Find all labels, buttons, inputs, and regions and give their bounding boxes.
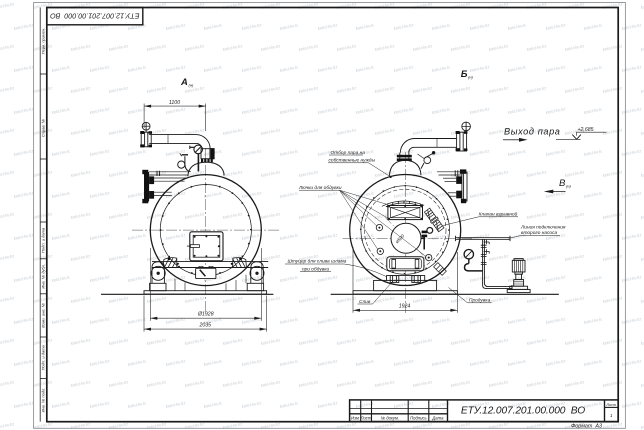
svg-text:Дата: Дата bbox=[431, 416, 444, 421]
svg-text:ЕТУ.12.007.201.00.000 ВО: ЕТУ.12.007.201.00.000 ВО bbox=[50, 12, 140, 21]
svg-text:Ø1928: Ø1928 bbox=[197, 312, 214, 318]
svg-text:(н): (н) bbox=[189, 83, 195, 88]
svg-text:Изм: Изм bbox=[351, 416, 359, 421]
svg-text:ЕТУ.12.007.201.00.000 ВО: ЕТУ.12.007.201.00.000 ВО bbox=[461, 406, 585, 417]
svg-text:1924: 1924 bbox=[399, 304, 411, 310]
svg-text:Линия подключения: Линия подключения bbox=[520, 224, 566, 230]
svg-text:Лист: Лист bbox=[360, 416, 372, 421]
svg-text:Инв. № дубл.: Инв. № дубл. bbox=[41, 264, 46, 289]
svg-text:1: 1 bbox=[610, 413, 612, 418]
svg-text:Инв. № подл.: Инв. № подл. bbox=[41, 388, 46, 413]
svg-text:Б: Б bbox=[461, 69, 468, 80]
svg-text:Выход пара: Выход пара bbox=[504, 127, 561, 137]
svg-text:В: В bbox=[559, 178, 566, 189]
svg-text:Лючки для обдувки: Лючки для обдувки bbox=[298, 185, 342, 191]
svg-text:2035: 2035 bbox=[199, 323, 212, 329]
svg-text:№ докум.: № докум. bbox=[381, 416, 399, 421]
svg-text:(н): (н) bbox=[566, 184, 572, 189]
svg-text:(н): (н) bbox=[468, 75, 474, 80]
svg-text:Подп. и дата: Подп. и дата bbox=[41, 345, 46, 371]
svg-text:Перв. примен.: Перв. примен. bbox=[41, 28, 46, 55]
svg-text:1100: 1100 bbox=[169, 100, 180, 106]
svg-text:Подп. и дата: Подп. и дата bbox=[41, 227, 46, 253]
svg-text:А: А bbox=[180, 77, 188, 88]
svg-text:Формат А3: Формат А3 bbox=[571, 423, 602, 429]
svg-text:Штуцер для слива шлама: Штуцер для слива шлама bbox=[288, 258, 347, 264]
svg-text:Лист: Лист bbox=[605, 403, 616, 407]
svg-text:Подпись: Подпись bbox=[410, 416, 427, 421]
svg-text:Справ. №: Справ. № bbox=[41, 118, 46, 137]
svg-text:Взам. инв. №: Взам. инв. № bbox=[41, 302, 46, 327]
